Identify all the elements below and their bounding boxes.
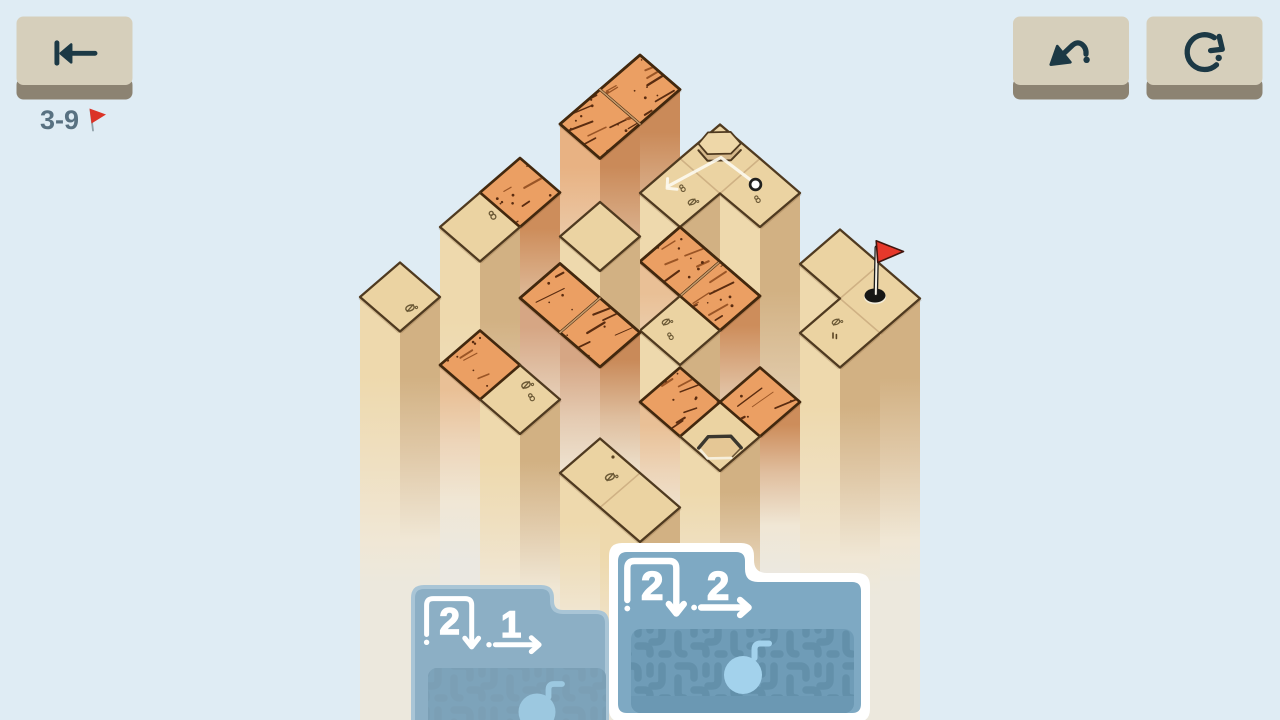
svg-text:2: 2	[439, 601, 459, 642]
svg-text:1: 1	[501, 604, 521, 645]
svg-text:2: 2	[641, 565, 663, 609]
svg-text:3-9: 3-9	[40, 105, 79, 135]
svg-text:2: 2	[707, 564, 729, 608]
